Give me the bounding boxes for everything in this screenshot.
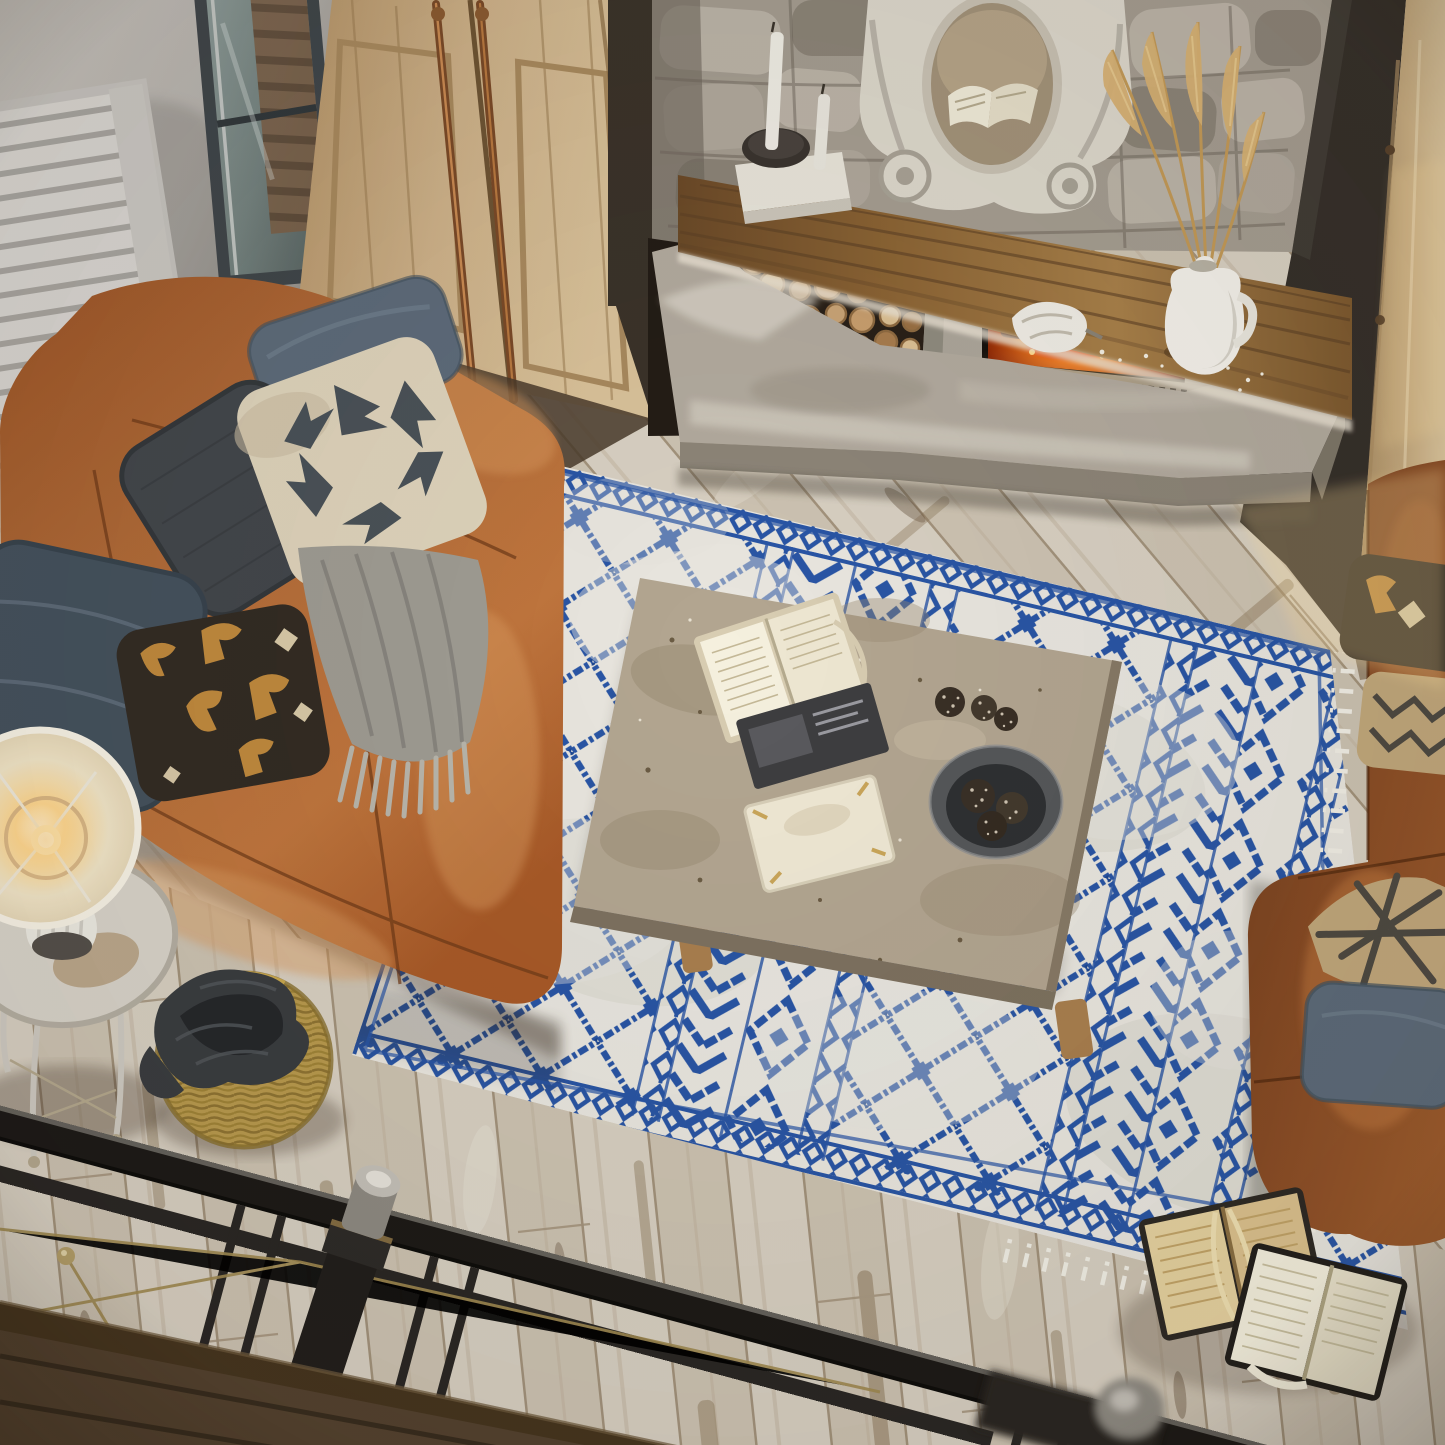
- scene-canvas: [0, 0, 1445, 1445]
- vignette: [0, 0, 1445, 1445]
- living-room-photo: Top-down photograph of a rustic living r…: [0, 0, 1445, 1445]
